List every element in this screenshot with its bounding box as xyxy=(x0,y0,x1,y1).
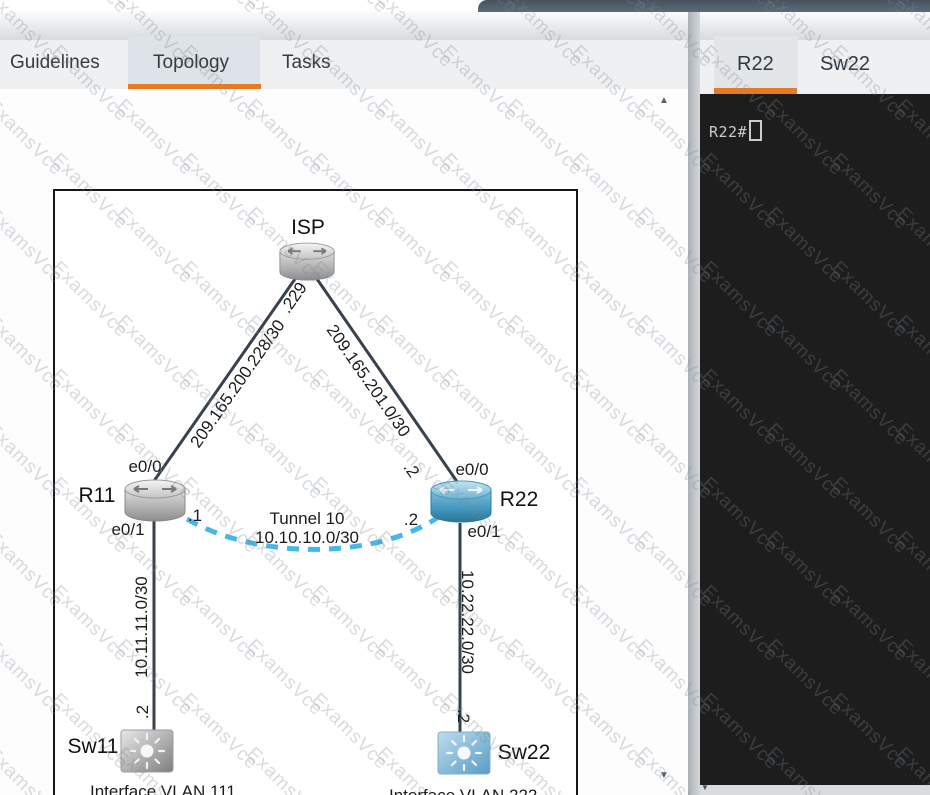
router-icon-r22 xyxy=(430,480,492,524)
intf-label-r22-e01: e0/1 xyxy=(467,522,500,542)
link-label-lan2-sw22-addr: .2 xyxy=(453,709,473,723)
sw11-note-line1: Interface VLAN 111 xyxy=(90,781,236,795)
terminal-prompt: R22# xyxy=(709,123,747,141)
tunnel-r22-addr-label: .2 xyxy=(404,510,418,530)
tunnel-r11-addr-label: .1 xyxy=(188,506,202,526)
node-label-r22: R22 xyxy=(500,488,539,512)
switch-icon-sw22 xyxy=(437,731,491,775)
terminal-prompt-line: R22# xyxy=(709,120,762,141)
intf-label-r11-e01: e0/1 xyxy=(111,520,144,540)
topology-diagram: ISP R11 R22 Sw11 Sw22 e0/0 e0/1 e0/0 e0/… xyxy=(53,189,578,795)
tab-console-sw22[interactable]: Sw22 xyxy=(820,53,870,76)
sw11-note: Interface VLAN 111 10.10.111.1/24 VRF Fi… xyxy=(90,781,236,795)
node-label-sw11: Sw11 xyxy=(68,735,119,759)
intf-label-r22-e00: e0/0 xyxy=(455,460,488,480)
tunnel-name-label: Tunnel 10 xyxy=(270,509,345,529)
link-label-lan2-subnet: 10.22.22.0/30 xyxy=(457,570,477,674)
console-window-titlebar xyxy=(478,0,930,12)
tunnel-subnet-label: 10.10.10.0/30 xyxy=(255,528,359,548)
topology-panel: ISP R11 R22 Sw11 Sw22 e0/0 e0/1 e0/0 e0/… xyxy=(0,89,688,795)
link-label-lan1-sw11-addr: .2 xyxy=(133,705,153,719)
scroll-up-icon[interactable]: ▲ xyxy=(656,95,672,106)
hscroll-arrow-icon[interactable]: ▼ xyxy=(701,783,709,792)
left-tab-bar: Guidelines Topology Tasks xyxy=(0,40,688,89)
intf-label-r11-e00: e0/0 xyxy=(128,457,161,477)
node-label-r11: R11 xyxy=(79,484,116,508)
exam-simulator-screen: Guidelines Topology Tasks xyxy=(0,0,930,795)
tab-console-r22[interactable]: R22 xyxy=(737,53,774,76)
node-label-isp: ISP xyxy=(291,216,325,240)
router-icon-r11 xyxy=(124,479,186,523)
console-tab-bar: R22 Sw22 xyxy=(700,40,930,94)
router-icon-isp xyxy=(279,242,335,282)
console-bottom-strip xyxy=(700,785,930,795)
sw22-note-line1: Interface VLAN 222 xyxy=(389,785,537,795)
node-label-sw22: Sw22 xyxy=(498,741,551,765)
tab-guidelines[interactable]: Guidelines xyxy=(10,52,100,74)
console-terminal[interactable]: R22# xyxy=(700,94,930,785)
terminal-cursor xyxy=(749,120,762,141)
tab-topology[interactable]: Topology xyxy=(153,52,229,74)
switch-icon-sw11 xyxy=(120,729,174,773)
sw22-note: Interface VLAN 222 10.10.222.1/24 VRF Fi… xyxy=(389,785,537,795)
scroll-down-icon[interactable]: ▼ xyxy=(656,770,672,781)
panel-divider xyxy=(688,12,700,795)
link-label-lan1-subnet: 10.11.11.0/30 xyxy=(132,576,152,677)
tab-tasks[interactable]: Tasks xyxy=(282,52,331,74)
